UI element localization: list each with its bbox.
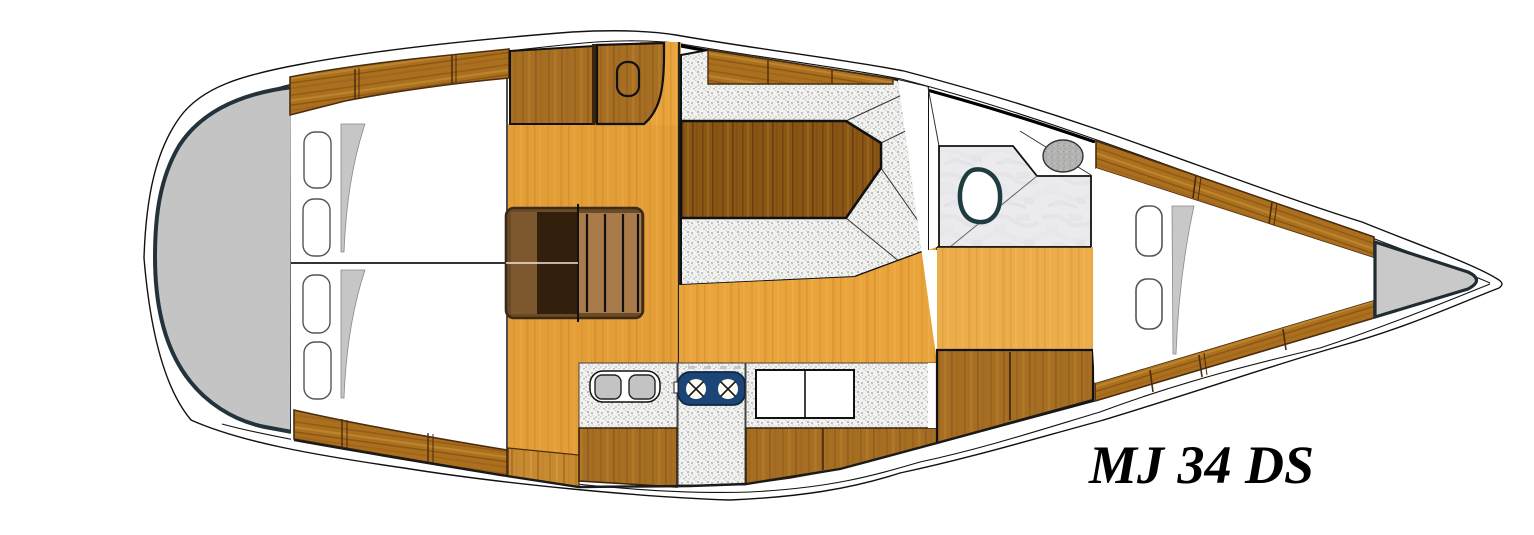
svg-text:MJ 34 DS: MJ 34 DS bbox=[1088, 435, 1314, 495]
